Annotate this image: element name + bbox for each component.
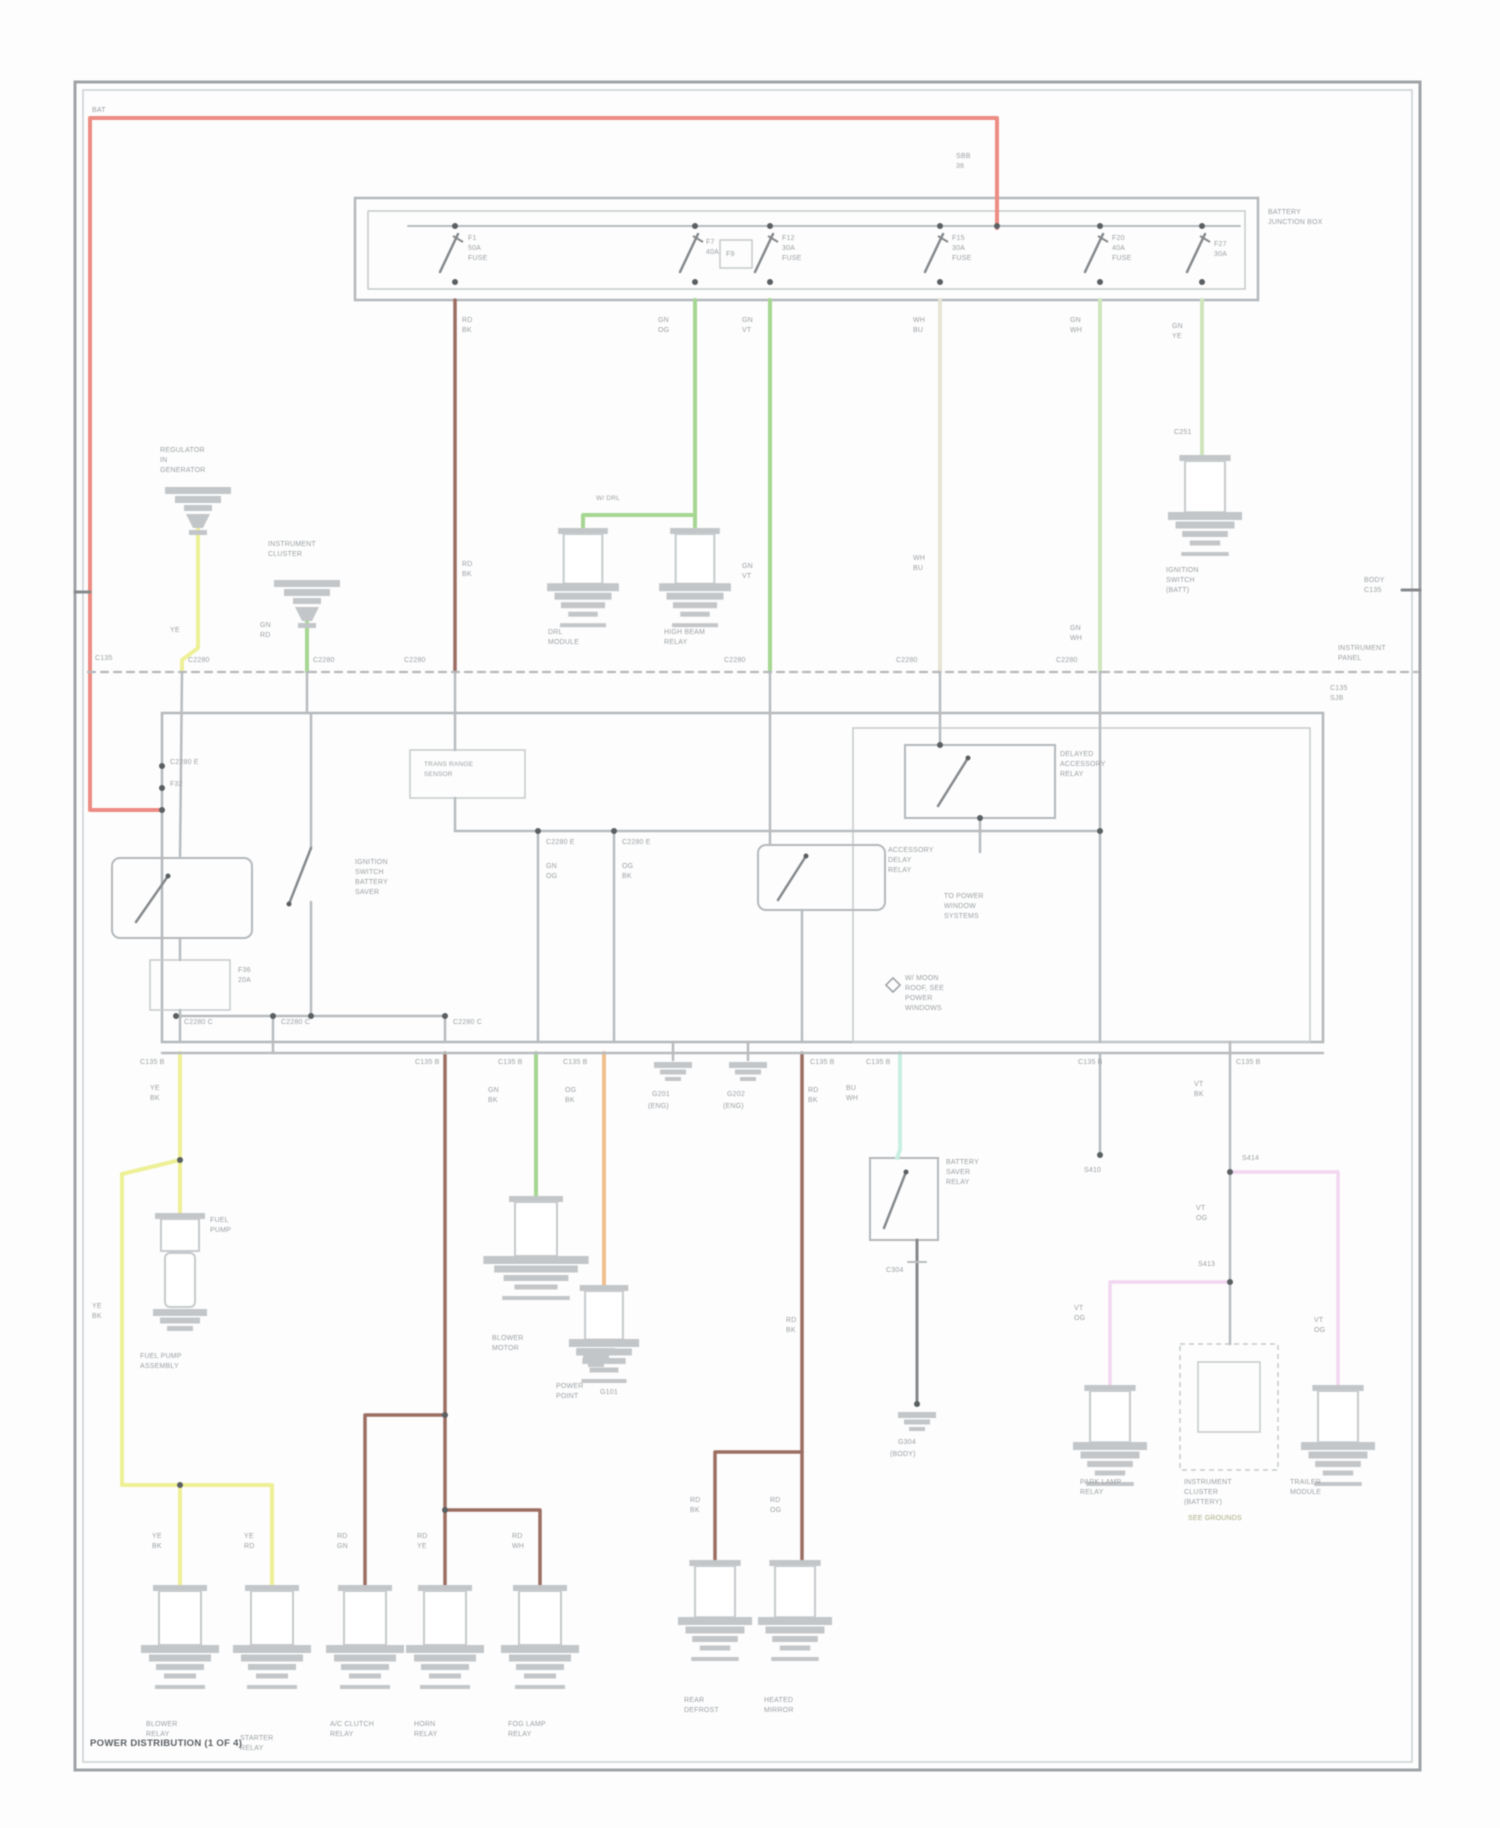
- diagram-label: GN: [742, 317, 753, 324]
- diagram-label: C135 B: [866, 1059, 891, 1066]
- diagram-label: C2280 E: [546, 839, 575, 846]
- diagram-label: G202: [727, 1091, 745, 1098]
- terminal-dot: [937, 742, 943, 748]
- diagram-label: 30A: [952, 245, 965, 252]
- page-border-inner: [83, 90, 1412, 1762]
- diagram-label: POWER: [556, 1383, 583, 1390]
- diagram-label: PANEL: [1338, 655, 1361, 662]
- fuel-pump-assembly-stack: [167, 1326, 193, 1331]
- ac-clutch-relay-stack: [334, 1655, 396, 1662]
- ground-g304-bar: [904, 1420, 930, 1425]
- terminal-dot: [1227, 1279, 1233, 1285]
- diagram-label: RD: [260, 632, 271, 639]
- terminal-dot: [977, 815, 983, 821]
- terminal-dot: [442, 1507, 448, 1513]
- ac-clutch-relay-stack: [349, 1674, 381, 1679]
- diagram-label: VT: [1194, 1081, 1204, 1088]
- diagram-label: 50A: [468, 245, 481, 252]
- diagram-label: FUSE: [952, 255, 972, 262]
- terminal-dot: [994, 223, 1000, 229]
- ignition-switch-batt-foot: [1181, 552, 1229, 556]
- diagram-label: YE: [152, 1533, 162, 1540]
- fuel-pump-assembly-connector: [161, 1219, 199, 1251]
- diagram-label: WH: [1070, 327, 1082, 334]
- diagram-label: RELAY: [330, 1731, 354, 1738]
- diagram-label: RELAY: [888, 867, 912, 874]
- diagram-label: FOG LAMP: [508, 1721, 546, 1728]
- relay-d-switch: [778, 856, 806, 900]
- drl-module-foot: [560, 623, 606, 627]
- ignition-switch-left-pivot: [287, 902, 292, 907]
- ac-clutch-relay-body: [344, 1591, 386, 1645]
- terminal-dot: [442, 1412, 448, 1418]
- ac-clutch-relay-stack: [326, 1645, 404, 1653]
- diagram-label: OG: [1314, 1327, 1325, 1334]
- diagram-label: C135 B: [1236, 1059, 1261, 1066]
- diagram-label: GN: [742, 563, 753, 570]
- diagram-label: REAR: [684, 1697, 704, 1704]
- diagram-label: SWITCH: [1166, 577, 1195, 584]
- diagram-label: BATTERY: [355, 879, 388, 886]
- diagram-label: YE: [1172, 333, 1182, 340]
- diagram-label: OG: [1196, 1215, 1207, 1222]
- blower-relay-stack: [156, 1664, 204, 1670]
- terminal-dot: [914, 1401, 920, 1407]
- diagram-label: WINDOW: [944, 903, 976, 910]
- high-beam-relay-stack: [666, 593, 723, 600]
- diagram-label: SBB: [956, 153, 971, 160]
- fuel-pump-assembly-body: [165, 1253, 195, 1307]
- junction-module-box: [162, 713, 1323, 1042]
- diagram-label: S413: [1198, 1261, 1215, 1268]
- diagram-label: OG: [770, 1507, 781, 1514]
- diagram-label: OG: [565, 1087, 576, 1094]
- heated-mirror-stack: [772, 1636, 818, 1642]
- horn-relay-stack: [406, 1645, 484, 1653]
- fog-lamp-relay-body: [519, 1591, 561, 1645]
- diagram-label: CLUSTER: [1184, 1489, 1218, 1496]
- diagram-label: BK: [152, 1543, 162, 1550]
- diagram-label: (ENG): [723, 1103, 744, 1110]
- park-lamp-relay-body: [1090, 1391, 1130, 1442]
- diagram-label: OG: [658, 327, 669, 334]
- diagram-label: FUSE: [1112, 255, 1132, 262]
- diagram-label: F32: [170, 781, 183, 788]
- diagram-label: C2280 E: [622, 839, 651, 846]
- blower-motor-stack: [483, 1256, 588, 1264]
- blower-relay-body: [159, 1591, 201, 1645]
- diagram-label: FUEL: [210, 1217, 229, 1224]
- diagram-label: PARK LAMP: [1080, 1479, 1121, 1486]
- diagram-label: BK: [462, 327, 472, 334]
- terminal-dot: [442, 1013, 448, 1019]
- diagram-label: INSTRUMENT: [1338, 645, 1386, 652]
- diagram-label: G201: [652, 1091, 670, 1098]
- diagram-label: C304: [886, 1267, 904, 1274]
- diagram-label: RELAY: [146, 1731, 170, 1738]
- rear-defrost-body: [695, 1566, 735, 1617]
- trailer-module-foot: [1314, 1482, 1362, 1486]
- diagram-label: BLOWER: [146, 1721, 178, 1728]
- saver-drop-cyan: [897, 1053, 900, 1158]
- diagram-label: BK: [150, 1095, 160, 1102]
- diagram-label: C135 B: [563, 1059, 588, 1066]
- diagram-label: PUMP: [210, 1227, 231, 1234]
- park-lamp-relay-stack: [1073, 1442, 1147, 1450]
- diagram-label: (BATTERY): [1184, 1499, 1222, 1506]
- diagram-label: C2280: [1056, 657, 1078, 664]
- terminal-dot: [1227, 1169, 1233, 1175]
- ground-g101-bar: [588, 1363, 604, 1367]
- terminal-dot: [159, 763, 165, 769]
- rear-defrost-stack: [686, 1627, 745, 1634]
- ground-g202-bar: [729, 1062, 767, 1068]
- terminal-dot: [270, 1013, 276, 1019]
- diagram-label: IN: [160, 457, 167, 464]
- diagram-label: C135 B: [1078, 1059, 1103, 1066]
- diagram-label: 40A: [1112, 245, 1125, 252]
- diagram-label: VT: [1196, 1205, 1206, 1212]
- diagram-label: GN: [1070, 317, 1081, 324]
- diagram-label: IGNITION: [355, 859, 388, 866]
- relay-maroon-right: [445, 1510, 540, 1585]
- diagram-label: SWITCH: [355, 869, 384, 876]
- note-diamond-icon: [886, 978, 900, 992]
- diagram-label: F15: [952, 235, 965, 242]
- fuel-pump-assembly-stack: [160, 1318, 200, 1324]
- terminal-dot: [159, 807, 165, 813]
- diagram-label: RELAY: [1080, 1489, 1104, 1496]
- cluster-feeder-tail: [298, 623, 316, 628]
- high-beam-relay-stack: [659, 583, 731, 591]
- drl-drop-green: [583, 300, 695, 528]
- diagram-label: C135 B: [810, 1059, 835, 1066]
- terminal-dot: [1097, 828, 1103, 834]
- wiring-diagram-page: BATSBB36BATTERYJUNCTION BOXF150AFUSEF740…: [0, 0, 1500, 1828]
- diagram-label: W/ MOON: [905, 975, 939, 982]
- relay-e-box: [870, 1158, 938, 1240]
- diagram-label: DEFROST: [684, 1707, 719, 1714]
- horn-relay-stack: [414, 1655, 476, 1662]
- diagram-label: CLUSTER: [268, 551, 302, 558]
- power-point-stack: [569, 1339, 639, 1347]
- blower-motor-body: [515, 1202, 557, 1256]
- high-beam-relay-foot: [672, 623, 718, 627]
- diagram-label: C135 B: [140, 1059, 165, 1066]
- diagram-label: MODULE: [548, 639, 579, 646]
- diagram-label: JUNCTION BOX: [1268, 219, 1323, 226]
- heated-mirror-stack: [766, 1627, 825, 1634]
- diagram-label: INSTRUMENT: [268, 541, 316, 548]
- rear-defrost-stack: [700, 1646, 730, 1651]
- terminal-dot: [692, 279, 698, 285]
- diagram-label: ACCESSORY: [1060, 761, 1106, 768]
- ground-g201-bar: [660, 1070, 686, 1075]
- diagram-label: RELAY: [508, 1731, 532, 1738]
- cluster-feeder-stack: [274, 580, 340, 587]
- diagram-label: RD: [462, 317, 473, 324]
- relay-a-box: [112, 858, 252, 938]
- diagram-label: C2280 C: [184, 1019, 213, 1026]
- diagram-label: YE: [150, 1085, 160, 1092]
- ac-clutch-relay-stack: [341, 1664, 389, 1670]
- diagram-label: C2280 E: [170, 759, 199, 766]
- fog-lamp-relay-stack: [516, 1664, 564, 1670]
- diagram-label: GN: [337, 1543, 348, 1550]
- cluster-feeder-stack: [293, 598, 321, 604]
- diagram-label: RELAY: [1060, 771, 1084, 778]
- diagram-label: GN: [488, 1087, 499, 1094]
- diagram-label: SEE GROUNDS: [1188, 1515, 1242, 1522]
- diagram-label: OG: [1074, 1315, 1085, 1322]
- diagram-label: MODULE: [1290, 1489, 1321, 1496]
- diagram-label: RD: [244, 1543, 255, 1550]
- diagram-label: MOTOR: [492, 1345, 519, 1352]
- diagram-label: OG: [622, 863, 633, 870]
- diagram-label: RD: [690, 1497, 701, 1504]
- starter-relay-foot: [247, 1685, 297, 1689]
- terminal-dot: [767, 223, 773, 229]
- relay-e-switch-pivot: [904, 1170, 909, 1175]
- diagram-label: GN: [546, 863, 557, 870]
- fog-lamp-relay-stack: [501, 1645, 579, 1653]
- generator-feeder-stack: [175, 496, 221, 503]
- diagram-label: F9: [726, 251, 735, 258]
- ground-g202-bar: [735, 1070, 761, 1075]
- diagram-label: RELAY: [414, 1731, 438, 1738]
- terminal-dot: [173, 1013, 179, 1019]
- diagram-label: MIRROR: [764, 1707, 794, 1714]
- diagram-label: FUEL PUMP: [140, 1353, 182, 1360]
- terminal-dot: [937, 223, 943, 229]
- diagram-label: RD: [337, 1533, 348, 1540]
- diagram-label: FUSE: [782, 255, 802, 262]
- diagram-label: GN: [1172, 323, 1183, 330]
- diagram-label: G101: [600, 1389, 618, 1396]
- diagram-label: C2280 C: [453, 1019, 482, 1026]
- trailer-module-stack: [1301, 1442, 1375, 1450]
- diagram-label: F7: [706, 239, 715, 246]
- ignition-switch-batt-stack: [1168, 512, 1242, 520]
- drl-module-stack: [554, 593, 611, 600]
- diagram-label: RD: [786, 1317, 797, 1324]
- bottom-maroon-branch: [715, 1452, 802, 1560]
- diagram-label: ROOF, SEE: [905, 985, 944, 992]
- diagram-label: WINDOWS: [905, 1005, 942, 1012]
- blower-relay-stack: [164, 1674, 196, 1679]
- diagram-label: IGNITION: [1166, 567, 1199, 574]
- diagram-label: BK: [690, 1507, 700, 1514]
- diagram-label: RD: [770, 1497, 781, 1504]
- diagram-label: C135: [1330, 685, 1348, 692]
- diagram-label: (ENG): [648, 1103, 669, 1110]
- terminal-dot: [452, 223, 458, 229]
- terminal-dot: [1097, 279, 1103, 285]
- diagram-label: C2280: [896, 657, 918, 664]
- blower-motor-stack: [494, 1266, 578, 1273]
- diagram-label: C2280: [404, 657, 426, 664]
- diagram-label: C251: [1174, 429, 1192, 436]
- diagram-label: S414: [1242, 1155, 1259, 1162]
- blower-relay-stack: [141, 1645, 219, 1653]
- ground-g201-bar: [654, 1062, 692, 1068]
- fuse-element-5: [1085, 234, 1103, 272]
- diagram-label: DELAY: [888, 857, 912, 864]
- drl-module-stack: [547, 583, 619, 591]
- terminal-dot: [1199, 223, 1205, 229]
- relay-b-switch-pivot: [966, 756, 971, 761]
- terminal-dot: [1097, 1152, 1103, 1158]
- diagram-label: STARTER: [240, 1735, 273, 1742]
- diagram-label: BK: [1194, 1091, 1204, 1098]
- relay-d-switch-pivot: [804, 854, 809, 859]
- diagram-label: C2280: [724, 657, 746, 664]
- ignition-switch-left: [289, 848, 311, 904]
- starter-relay-stack: [233, 1645, 311, 1653]
- fog-lamp-relay-foot: [515, 1685, 565, 1689]
- diagram-label: 30A: [782, 245, 795, 252]
- diagram-label: VT: [1074, 1305, 1084, 1312]
- diagram-label: F12: [782, 235, 795, 242]
- terminal-dot: [535, 828, 541, 834]
- hot-feed-red: [90, 118, 997, 810]
- diagram-label: GN: [1070, 625, 1081, 632]
- diagram-label: 40A: [706, 249, 719, 256]
- ac-clutch-relay-foot: [340, 1685, 390, 1689]
- blower-relay-stack: [149, 1655, 211, 1662]
- diagram-label: HIGH BEAM: [664, 629, 705, 636]
- ignition-switch-batt-stack: [1176, 522, 1235, 529]
- starter-relay-stack: [256, 1674, 288, 1679]
- fuse-element-4: [925, 234, 943, 272]
- park-lamp-relay-stack: [1087, 1461, 1133, 1467]
- diagram-label: C2280 C: [281, 1019, 310, 1026]
- terminal-dot: [177, 1157, 183, 1163]
- blower-motor-stack: [514, 1285, 557, 1290]
- cluster-module-inner-box: [1198, 1362, 1260, 1432]
- terminal-dot: [692, 223, 698, 229]
- diagram-label: BLOWER: [492, 1335, 524, 1342]
- power-point-body: [585, 1291, 623, 1340]
- trailer-module-body: [1318, 1391, 1358, 1442]
- diagram-label: TRAILER: [1290, 1479, 1321, 1486]
- diagram-label: YE: [417, 1543, 427, 1550]
- relay-b-box: [905, 745, 1055, 818]
- diagram-label: C135 B: [498, 1059, 523, 1066]
- diagram-label: (BODY): [890, 1451, 916, 1458]
- diagram-label: SJB: [1330, 695, 1344, 702]
- heated-mirror-foot: [771, 1657, 819, 1661]
- diagram-label: HORN: [414, 1721, 435, 1728]
- power-point-stack: [590, 1368, 619, 1373]
- generator-feeder-funnel: [186, 514, 210, 528]
- diagram-label: BAT: [92, 107, 106, 114]
- diagram-label: F27: [1214, 241, 1227, 248]
- ignition-switch-batt-body: [1185, 461, 1225, 512]
- relay-e-switch: [884, 1172, 906, 1228]
- diagram-label: RD: [808, 1087, 819, 1094]
- power-distribution-diagram: BATSBB36BATTERYJUNCTION BOXF150AFUSEF740…: [0, 0, 1500, 1828]
- horn-relay-stack: [421, 1664, 469, 1670]
- starter-relay-body: [251, 1591, 293, 1645]
- diagram-label: GN: [658, 317, 669, 324]
- diagram-label: S410: [1084, 1167, 1101, 1174]
- heated-mirror-body: [775, 1566, 815, 1617]
- terminal-dot: [937, 279, 943, 285]
- relay-maroon-left: [365, 1415, 445, 1585]
- generator-feeder-stack: [184, 505, 212, 511]
- diagram-label: C135: [1364, 587, 1382, 594]
- trailer-module-stack: [1309, 1452, 1368, 1459]
- high-beam-relay-stack: [680, 612, 709, 617]
- blower-relay-foot: [155, 1685, 205, 1689]
- diagram-label: BK: [622, 873, 632, 880]
- diagram-label: BK: [92, 1313, 102, 1320]
- generator-feeder-tail: [189, 530, 207, 535]
- diagram-label: C135 B: [415, 1059, 440, 1066]
- ignition-switch-batt-stack: [1182, 531, 1228, 537]
- diagram-caption: POWER DISTRIBUTION (1 OF 4): [90, 1738, 242, 1749]
- diagram-label: YE: [92, 1303, 102, 1310]
- diagram-label: 20A: [238, 977, 251, 984]
- diagram-label: BU: [913, 565, 923, 572]
- diagram-label: BK: [786, 1327, 796, 1334]
- rear-defrost-stack: [678, 1617, 752, 1625]
- diagram-label: TO POWER: [944, 893, 984, 900]
- drl-module-stack: [568, 612, 597, 617]
- diagram-label: F1: [468, 235, 477, 242]
- park-lamp-relay-stack: [1081, 1452, 1140, 1459]
- diagram-label: SENSOR: [424, 771, 453, 778]
- ground-g304-bar: [898, 1412, 936, 1418]
- diagram-label: REGULATOR: [160, 447, 205, 454]
- relay-a-switch-pivot: [166, 874, 171, 879]
- horn-relay-foot: [420, 1685, 470, 1689]
- diagram-label: F20: [1112, 235, 1125, 242]
- diagram-label: WH: [846, 1095, 858, 1102]
- diagram-label: BK: [565, 1097, 575, 1104]
- starter-relay-stack: [241, 1655, 303, 1662]
- diagram-label: BU: [913, 327, 923, 334]
- ground-g101-bar: [577, 1348, 615, 1354]
- diagram-label: C135: [95, 655, 113, 662]
- diagram-label: RD: [417, 1533, 428, 1540]
- diagram-label: BATTERY: [1268, 209, 1301, 216]
- diagram-label: ACCESSORY: [888, 847, 934, 854]
- diagram-label: RELAY: [946, 1179, 970, 1186]
- heated-mirror-stack: [780, 1646, 810, 1651]
- rear-defrost-foot: [691, 1657, 739, 1661]
- diagram-label: 30A: [1214, 251, 1227, 258]
- terminal-dot: [611, 828, 617, 834]
- drl-module-stack: [561, 602, 605, 608]
- diagram-label: A/C CLUTCH: [330, 1721, 374, 1728]
- terminal-dot: [767, 279, 773, 285]
- high-beam-relay-stack: [673, 602, 717, 608]
- diagram-label: DRL: [548, 629, 563, 636]
- diagram-label: C2280: [313, 657, 335, 664]
- cluster-feeder-funnel: [295, 607, 319, 621]
- diagram-label: VT: [742, 573, 752, 580]
- diagram-label: G304: [898, 1439, 916, 1446]
- diagram-label: RELAY: [664, 639, 688, 646]
- relay-b-switch: [938, 758, 968, 806]
- high-beam-relay-body: [676, 534, 715, 584]
- diagram-label: GENERATOR: [160, 467, 206, 474]
- terminal-dot: [159, 785, 165, 791]
- horn-relay-body: [424, 1591, 466, 1645]
- diagram-label: WH: [512, 1543, 524, 1550]
